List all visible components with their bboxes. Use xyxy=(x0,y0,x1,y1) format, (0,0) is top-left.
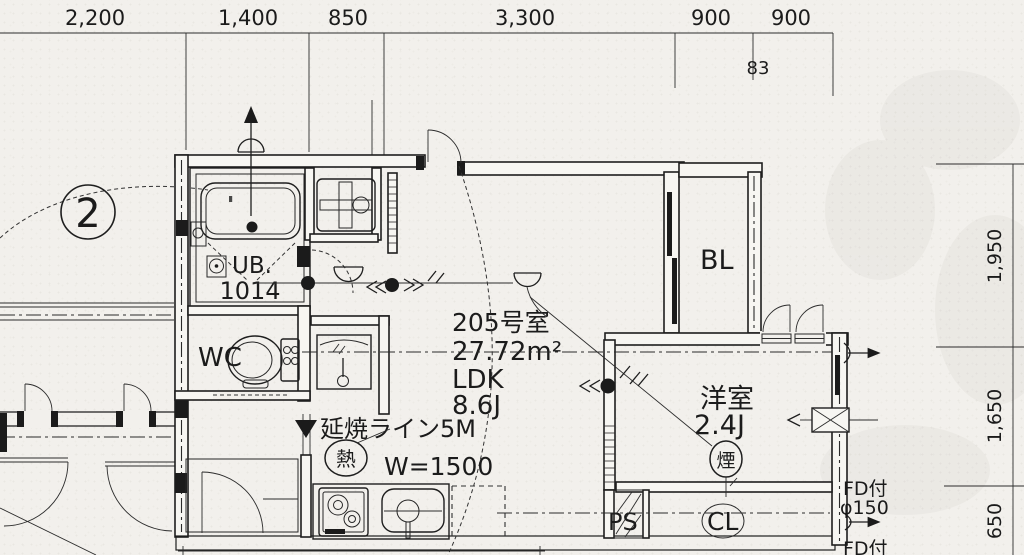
dim-sub-83: 83 xyxy=(747,58,770,79)
label-heat: 熱 xyxy=(336,447,356,471)
ventilation-annotations xyxy=(253,267,878,432)
wall-bottom-hatched xyxy=(176,536,835,550)
label-fire-line: 延焼ライン5M xyxy=(320,415,476,443)
dim-right-2: 1,650 xyxy=(984,389,1006,443)
scan-grain xyxy=(820,70,1024,515)
laundry-room xyxy=(305,168,381,242)
smoke-leader-line xyxy=(530,297,712,446)
ub-door xyxy=(297,246,310,267)
western-room: 洋室 2.4J 煙 xyxy=(530,297,848,545)
fan-box-icon xyxy=(788,408,878,432)
dim-top-4: 3,300 xyxy=(495,6,555,30)
label-ub: UB. xyxy=(232,253,272,279)
top-dimension-chain: 2,200 1,400 850 3,300 900 900 83 xyxy=(0,6,833,155)
label-ub-size: 1014 xyxy=(219,277,280,305)
label-smoke: 煙 xyxy=(716,450,735,472)
washer-pan xyxy=(317,179,375,231)
label-kitchen-width: W=1500 xyxy=(384,452,493,481)
balcony: BL xyxy=(664,163,762,333)
wall-hatched-partition xyxy=(388,173,397,253)
airflow-node-icon xyxy=(385,278,399,292)
dim-top-2: 1,400 xyxy=(218,6,278,30)
label-western-size: 2.4J xyxy=(694,410,745,441)
wall-top-ldk xyxy=(458,162,684,175)
washbasin xyxy=(317,335,371,389)
airflow-arrow-right-icon xyxy=(404,279,423,291)
label-ps: PS xyxy=(608,508,638,536)
ps-closet: PS CL xyxy=(497,490,830,538)
dim-top-3: 850 xyxy=(328,6,368,30)
access-panel xyxy=(176,220,188,236)
fd-duct-labels: FD付 φ150 FD付 xyxy=(840,478,889,555)
scanned-floorplan: 2,200 1,400 850 3,300 900 900 83 1,950 1… xyxy=(0,0,1024,555)
dim-top-6: 900 xyxy=(771,6,811,30)
ldk-top-door xyxy=(428,130,461,163)
label-wc: WC xyxy=(198,343,242,373)
airflow-node-icon xyxy=(301,276,315,290)
grid-bubble: 2 xyxy=(61,185,115,239)
entrance xyxy=(186,459,298,533)
corridor-door-swings xyxy=(25,384,151,411)
kitchen-sink xyxy=(382,489,444,538)
fire-line-marker-icon xyxy=(295,420,317,438)
wall-top-bath xyxy=(175,155,425,167)
grid-bubble-label: 2 xyxy=(75,191,100,237)
label-balcony: BL xyxy=(700,245,734,276)
wall-vent-out-icon xyxy=(844,343,878,363)
label-unit-no: 205号室 xyxy=(452,308,550,337)
ldk-room: 205号室 27.72m² LDK 8.6J xyxy=(452,308,562,421)
label-fd-bottom: FD付 xyxy=(843,538,888,555)
ub-sink xyxy=(207,256,226,277)
washbasin-room xyxy=(303,316,389,467)
label-cl: CL xyxy=(707,507,738,536)
entrance-door-swing xyxy=(202,472,263,533)
wc-room: WC xyxy=(175,306,310,401)
unit-bath: UB. 1014 xyxy=(176,106,353,308)
dim-top-5: 900 xyxy=(691,6,731,30)
airflow-arrow-left-icon xyxy=(580,380,600,392)
stove xyxy=(319,488,368,536)
floorplan-canvas: 2,200 1,400 850 3,300 900 900 83 1,950 1… xyxy=(0,0,1024,555)
dim-right-1: 1,950 xyxy=(984,229,1006,283)
airflow-node-icon xyxy=(601,379,616,394)
dim-top-1: 2,200 xyxy=(65,6,125,30)
dim-right-3: 650 xyxy=(984,503,1006,539)
